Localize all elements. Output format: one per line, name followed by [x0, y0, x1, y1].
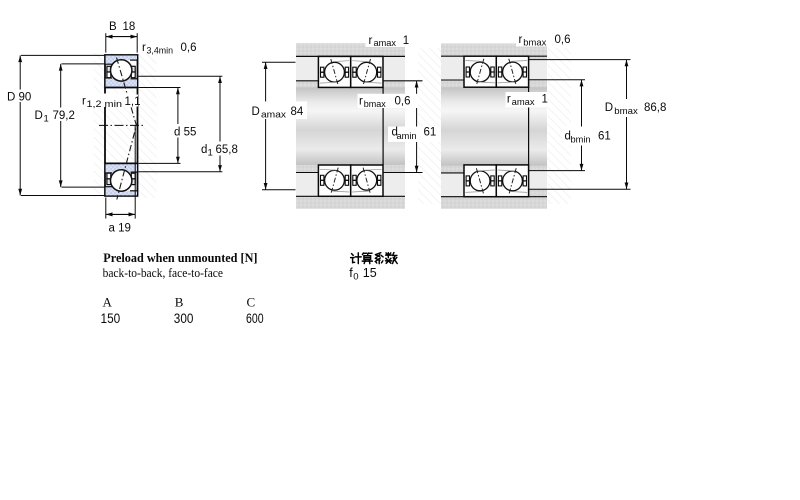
svg-text:d: d — [201, 144, 207, 156]
svg-text:d 55: d 55 — [174, 127, 196, 139]
svg-text:1: 1 — [208, 148, 213, 159]
svg-text:150: 150 — [101, 311, 121, 326]
svg-text:1: 1 — [403, 35, 409, 47]
svg-text:18: 18 — [123, 21, 136, 33]
svg-text:C: C — [247, 294, 256, 309]
svg-text:amax: amax — [261, 110, 286, 121]
svg-text:D: D — [252, 106, 260, 118]
svg-text:r: r — [519, 34, 523, 46]
svg-text:0,6: 0,6 — [181, 42, 197, 54]
svg-text:0,6: 0,6 — [395, 96, 411, 108]
svg-text:r: r — [507, 93, 511, 105]
svg-text:amax: amax — [512, 97, 535, 108]
svg-text:a 19: a 19 — [109, 223, 131, 235]
svg-text:bmax: bmax — [614, 106, 638, 117]
svg-text:1,1: 1,1 — [125, 96, 141, 108]
svg-text:D: D — [35, 110, 43, 122]
svg-text:600: 600 — [246, 311, 264, 326]
svg-text:79,2: 79,2 — [53, 110, 75, 122]
svg-text:1,2 min: 1,2 min — [87, 99, 123, 110]
svg-text:amax: amax — [374, 38, 397, 49]
svg-text:D: D — [605, 102, 613, 114]
svg-text:bmin: bmin — [571, 134, 591, 145]
svg-text:bmax: bmax — [364, 99, 386, 110]
svg-text:back-to-back, face-to-face: back-to-back, face-to-face — [103, 265, 224, 280]
svg-text:B: B — [175, 294, 184, 309]
svg-text:bmax: bmax — [523, 37, 546, 48]
svg-text:1: 1 — [44, 114, 49, 125]
svg-text:0,6: 0,6 — [555, 34, 571, 46]
svg-text:3,4min: 3,4min — [147, 46, 174, 57]
svg-text:65,8: 65,8 — [216, 144, 238, 156]
svg-text:Preload when unmounted [N]: Preload when unmounted [N] — [103, 250, 257, 265]
svg-text:84: 84 — [291, 106, 304, 118]
svg-text:r: r — [142, 42, 146, 54]
svg-text:r: r — [369, 35, 373, 47]
svg-text:r: r — [82, 96, 86, 108]
svg-text:86,8: 86,8 — [644, 102, 666, 114]
svg-text:61: 61 — [424, 127, 437, 139]
svg-text:A: A — [103, 294, 113, 309]
svg-text:15: 15 — [363, 266, 377, 280]
svg-text:300: 300 — [174, 311, 194, 326]
svg-text:D 90: D 90 — [7, 92, 31, 104]
svg-text:B: B — [109, 21, 117, 33]
svg-text:0: 0 — [353, 272, 358, 283]
svg-text:r: r — [359, 96, 363, 108]
svg-text:1: 1 — [542, 93, 548, 105]
svg-text:amin: amin — [397, 131, 417, 142]
svg-text:61: 61 — [598, 131, 611, 143]
